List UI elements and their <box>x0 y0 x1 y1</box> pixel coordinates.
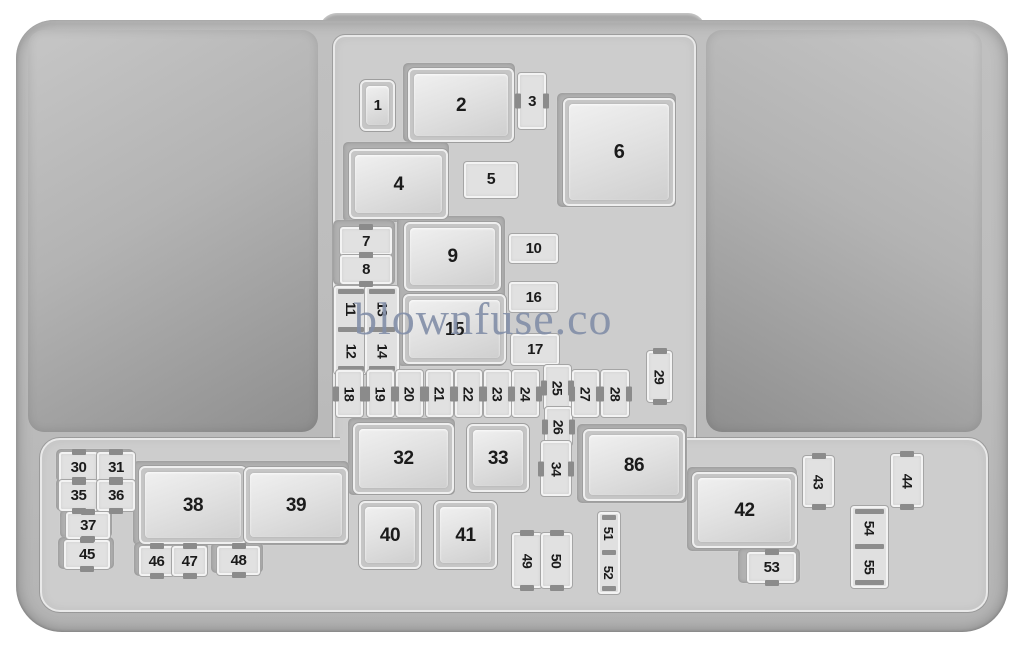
fuse-contact-tab <box>598 386 604 401</box>
fuse-contact-tab <box>359 281 373 287</box>
element-number: 43 <box>811 474 825 489</box>
fuse-contact-tab <box>150 543 164 549</box>
fuse-47: 47 <box>172 546 207 576</box>
fuse-49: 49 <box>512 533 542 588</box>
fuse-contact-tab <box>481 386 487 401</box>
fuse-contact-tab <box>72 477 86 483</box>
element-number: 8 <box>362 262 370 277</box>
element-number: 47 <box>182 554 198 569</box>
element-number: 51 <box>603 527 616 540</box>
fuse-contact-tab <box>520 530 534 536</box>
fuse-contact-tab <box>359 224 373 230</box>
left-cover-panel <box>28 30 318 432</box>
relay-41: 41 <box>434 501 497 569</box>
fuse-contact-tab <box>393 386 399 401</box>
fuse-25: 25 <box>544 365 571 410</box>
fuse-24: 24 <box>512 370 539 417</box>
element-number: 48 <box>231 553 247 568</box>
element-number: 22 <box>461 386 475 401</box>
fuse-22: 22 <box>455 370 482 417</box>
fuse-contact-tab <box>80 537 94 543</box>
fuse-contact-tab <box>509 386 515 401</box>
element-number: 49 <box>520 553 534 568</box>
fuse-contact-tab <box>520 585 534 591</box>
element-number: 28 <box>608 386 622 401</box>
relay-4: 4 <box>349 149 448 219</box>
fuse-contact-tab <box>109 508 123 514</box>
fuse-contact-tab <box>602 515 616 520</box>
fuse-29: 29 <box>647 351 672 402</box>
fuse-contact-tab <box>109 477 123 483</box>
fuse-contact-tab <box>812 504 826 510</box>
fuse-column-51-52: 5152 <box>598 512 620 594</box>
element-number: 50 <box>549 553 563 568</box>
fuse-46: 46 <box>139 546 174 576</box>
element-number: 40 <box>380 526 400 545</box>
fuse-contact-tab <box>765 580 779 586</box>
fuse-contact-tab <box>900 451 914 457</box>
element-number: 25 <box>550 380 564 395</box>
fuse-45: 45 <box>64 540 110 569</box>
element-number: 27 <box>578 386 592 401</box>
element-number: 86 <box>624 456 644 475</box>
element-number: 5 <box>487 172 495 188</box>
element-number: 52 <box>603 566 616 579</box>
fuse-contact-tab <box>541 380 547 395</box>
element-number: 6 <box>614 142 625 162</box>
element-number: 12 <box>344 344 358 359</box>
fuse-contact-tab <box>765 549 779 555</box>
element-number: 39 <box>286 496 306 515</box>
fuse-contact-tab <box>550 585 564 591</box>
fuse-contact-tab <box>855 544 884 549</box>
fuse-contact-tab <box>515 94 521 109</box>
element-number: 24 <box>518 386 532 401</box>
element-number: 20 <box>402 386 416 401</box>
element-number: 33 <box>488 449 508 468</box>
fuse-contact-tab <box>653 348 667 354</box>
fuse-7: 7 <box>340 227 392 255</box>
element-number: 1 <box>374 98 382 113</box>
fuse-53: 53 <box>747 552 796 583</box>
fuse-contact-tab <box>364 386 370 401</box>
element-number: 26 <box>551 419 565 434</box>
fuse-19: 19 <box>367 370 394 417</box>
element-number: 54 <box>862 520 876 535</box>
fuse-contact-tab <box>423 386 429 401</box>
relay-2: 2 <box>408 68 514 142</box>
fuse-contact-tab <box>855 580 884 585</box>
fuse-contact-tab <box>602 550 616 555</box>
fuse-34: 34 <box>541 441 571 496</box>
fuse-contact-tab <box>550 530 564 536</box>
element-number: 14 <box>375 344 389 359</box>
element-number: 17 <box>527 342 543 357</box>
fuse-contact-tab <box>653 399 667 405</box>
fuse-contact-tab <box>72 449 86 455</box>
fuse-contact-tab <box>602 586 616 591</box>
element-number: 30 <box>71 460 87 475</box>
relay-33: 33 <box>467 424 529 492</box>
element-number: 37 <box>80 518 96 533</box>
fuse-37: 37 <box>66 512 110 539</box>
fuse-contact-tab <box>109 449 123 455</box>
relay-86: 86 <box>583 429 685 501</box>
relay-6: 6 <box>563 98 675 206</box>
element-number: 41 <box>455 526 475 545</box>
fuse-contact-tab <box>626 386 632 401</box>
fuse-contact-tab <box>543 94 549 109</box>
element-number: 7 <box>362 234 370 249</box>
relay-42: 42 <box>692 472 797 548</box>
element-number: 42 <box>734 501 754 520</box>
element-number: 38 <box>183 496 203 515</box>
element-number: 23 <box>490 386 504 401</box>
relay-9: 9 <box>404 222 501 291</box>
fuse-column-54-55: 5455 <box>851 506 888 588</box>
element-number: 10 <box>526 241 542 256</box>
fuse-contact-tab <box>812 453 826 459</box>
fuse-contact-tab <box>542 419 548 434</box>
relay-38: 38 <box>139 466 247 544</box>
element-number: 34 <box>549 461 563 476</box>
element-number: 29 <box>652 369 666 384</box>
element-number: 45 <box>79 547 95 562</box>
fuse-contact-tab <box>80 566 94 572</box>
fuse-21: 21 <box>426 370 453 417</box>
element-number: 9 <box>447 247 457 266</box>
fuse-18: 18 <box>336 370 363 417</box>
fuse-contact-tab <box>232 543 246 549</box>
element-number: 18 <box>342 386 356 401</box>
relay-32: 32 <box>353 423 454 494</box>
element-number: 53 <box>764 560 780 575</box>
fuse-contact-tab <box>359 252 373 258</box>
element-number: 32 <box>393 449 413 468</box>
fuse-contact-tab <box>569 419 575 434</box>
fuse-23: 23 <box>484 370 511 417</box>
fuse-contact-tab <box>855 509 884 514</box>
fuse-27: 27 <box>572 370 599 417</box>
fuse-43: 43 <box>803 456 834 507</box>
fuse-44: 44 <box>891 454 923 507</box>
element-number: 19 <box>373 386 387 401</box>
fuse-contact-tab <box>333 386 339 401</box>
fuse-28: 28 <box>601 370 629 417</box>
fuse-5: 5 <box>464 162 518 198</box>
fuse-contact-tab <box>232 572 246 578</box>
fuse-contact-tab <box>183 573 197 579</box>
fuse-contact-tab <box>569 386 575 401</box>
fuse-contact-tab <box>150 573 164 579</box>
right-cover-panel <box>706 30 982 432</box>
fuse-48: 48 <box>217 546 260 575</box>
fuse-box-diagram: 1234567891016151711121314181920212223242… <box>0 0 1024 648</box>
fuse-50: 50 <box>541 533 572 588</box>
fuse-contact-tab <box>538 461 544 476</box>
element-number: 55 <box>862 559 876 574</box>
fuse-contact-tab <box>900 504 914 510</box>
element-number: 44 <box>900 473 914 488</box>
watermark: blownfuse.co <box>354 296 613 342</box>
fuse-contact-tab <box>452 386 458 401</box>
fuse-3: 3 <box>518 73 546 129</box>
element-number: 31 <box>108 460 124 475</box>
fuse-8: 8 <box>340 255 392 284</box>
element-number: 3 <box>528 94 536 109</box>
fuse-contact-tab <box>568 461 574 476</box>
relay-40: 40 <box>359 501 421 569</box>
relay-39: 39 <box>244 467 348 543</box>
element-number: 36 <box>108 488 124 503</box>
fuse-contact-tab <box>183 543 197 549</box>
relay-1: 1 <box>360 80 395 131</box>
element-number: 46 <box>149 554 165 569</box>
fuse-10: 10 <box>509 234 558 263</box>
fuse-contact-tab <box>81 509 95 515</box>
fuse-20: 20 <box>396 370 423 417</box>
element-number: 35 <box>71 488 87 503</box>
element-number: 21 <box>432 386 446 401</box>
element-number: 4 <box>393 175 403 194</box>
element-number: 2 <box>456 96 466 115</box>
